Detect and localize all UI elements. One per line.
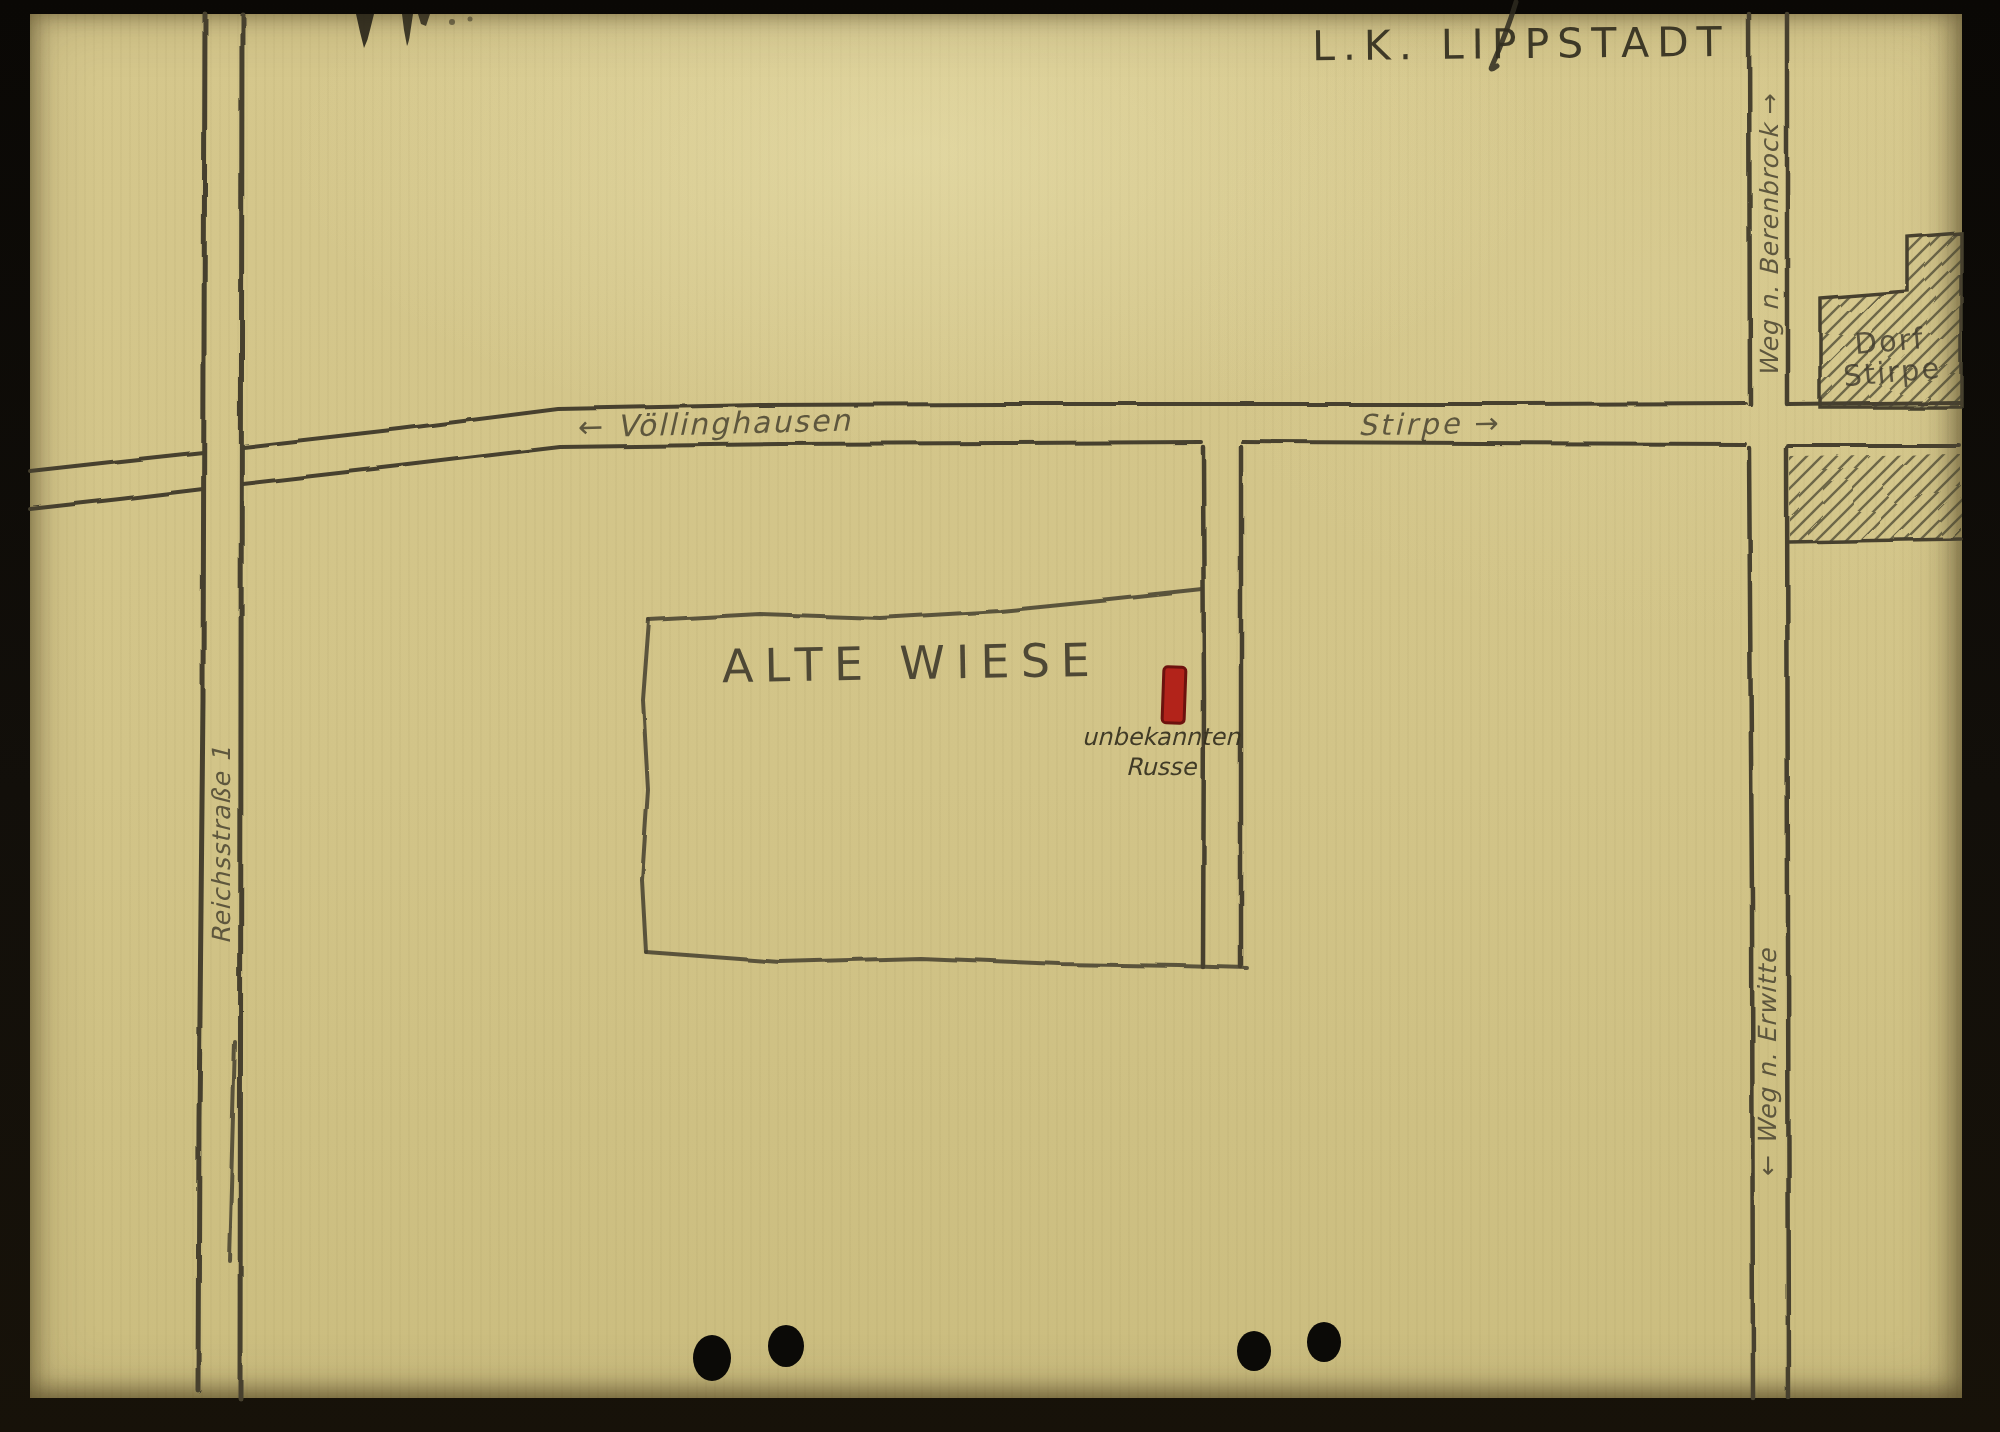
road-label-east-text: Stirpe xyxy=(1358,406,1463,442)
road-label-south-text: Weg n. Erwitte xyxy=(1753,948,1782,1145)
road-label-west-text: Völlinghausen xyxy=(616,402,852,443)
arrow-north-icon: → xyxy=(1755,93,1784,115)
village-label: Dorf Stirpe xyxy=(1824,320,1959,394)
field-label: ALTE WIESE xyxy=(722,633,1102,694)
road-label-south: ← Weg n. Erwitte xyxy=(1753,948,1782,1176)
road-label-north: Weg n. Berenbrock → xyxy=(1755,93,1784,378)
arrow-south-icon: ← xyxy=(1753,1154,1782,1176)
road-label-north-text: Weg n. Berenbrock xyxy=(1755,124,1784,378)
road-label-east: Stirpe → xyxy=(1358,406,1502,443)
marker-label-line1: unbekannten xyxy=(1056,722,1266,752)
scanned-map-page: L.K. LIPPSTADT ← Völlinghausen Stirpe → … xyxy=(0,0,2000,1432)
map-title: L.K. LIPPSTADT xyxy=(1312,18,1730,70)
marker-label-line2: Russe xyxy=(1056,752,1266,782)
marker-label: unbekannten Russe xyxy=(1056,722,1266,782)
road-label-west: ← Völlinghausen xyxy=(578,402,853,444)
arrow-east-icon: → xyxy=(1474,406,1502,440)
paper-sheet xyxy=(30,14,1962,1398)
arrow-west-icon: ← xyxy=(578,409,606,445)
road-label-highway: Reichsstraße 1 xyxy=(207,746,236,945)
